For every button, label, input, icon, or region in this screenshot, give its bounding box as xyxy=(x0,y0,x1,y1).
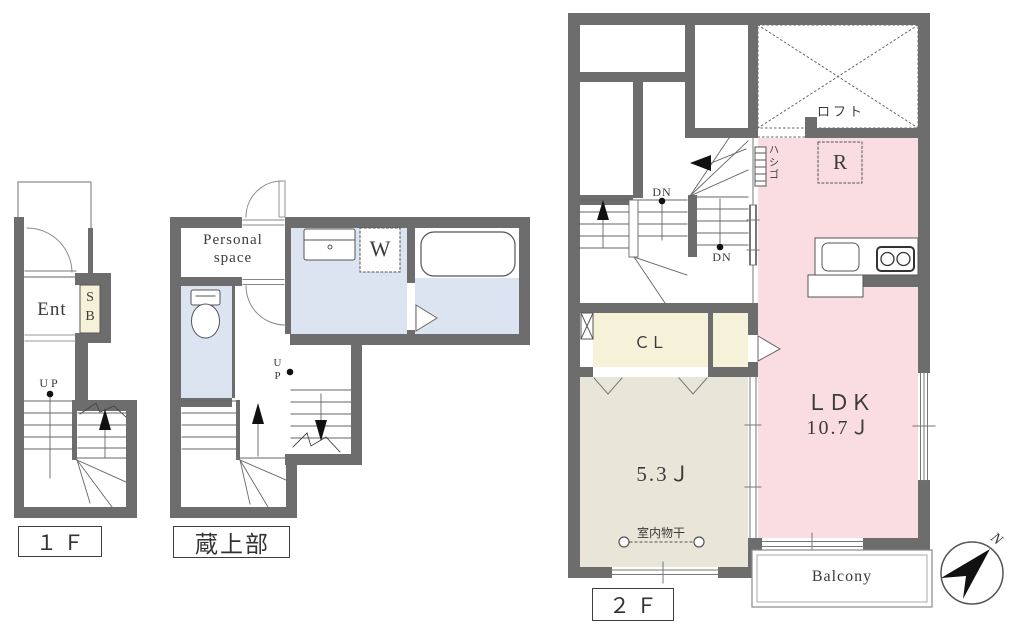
plan-title-2f: ２Ｆ xyxy=(592,588,674,621)
closet2-floor xyxy=(713,313,748,367)
up-arrow-kura xyxy=(252,403,264,424)
up-arrow-1f xyxy=(99,409,111,430)
ladder-icon xyxy=(755,147,766,186)
toilet-icon xyxy=(191,290,220,338)
indoor-drying-label: 室内物干 xyxy=(611,524,711,541)
up-start-dot xyxy=(47,391,54,398)
compass-icon xyxy=(941,542,1003,604)
dn-label-b: DN xyxy=(706,250,738,265)
up-start-dot-kura xyxy=(287,369,294,376)
kitchen-sink-icon xyxy=(822,243,859,271)
stair-break-line-kura xyxy=(293,433,340,452)
kura-door-opening-top xyxy=(242,218,285,227)
room-label-washer: W xyxy=(360,236,400,262)
stairs-kura xyxy=(182,390,351,507)
bathtub-icon xyxy=(421,232,515,276)
room-label-r: R xyxy=(818,150,862,175)
plan-title-1f: １Ｆ xyxy=(18,526,102,557)
stove-icon xyxy=(877,247,914,271)
pipe-space-hatch xyxy=(581,313,593,339)
dn-label-a: DN xyxy=(646,185,678,200)
room-label-loft: ロフト xyxy=(796,101,886,120)
ent-threshold xyxy=(25,335,75,341)
floor-plan-1f xyxy=(14,182,137,518)
up-label-kura: UP xyxy=(271,357,284,382)
room-label-ent: Ent xyxy=(27,299,77,321)
kura-door-leaf xyxy=(279,181,285,217)
floorplan-page: Ent SB UP １Ｆ Personal space W UP 蔵上部 ロフト… xyxy=(0,0,1024,632)
left-arrow-2f xyxy=(690,155,711,171)
personal-door-arc xyxy=(246,286,285,325)
bath-floor xyxy=(415,278,519,335)
ldk-floor xyxy=(758,138,918,538)
porch xyxy=(18,182,91,277)
stairs-1f xyxy=(24,397,126,507)
stairs-2f xyxy=(578,138,748,303)
sink-icon xyxy=(304,229,355,260)
loft-area xyxy=(758,25,918,137)
balcony-label: Balcony xyxy=(772,568,912,586)
floor-plan-2f xyxy=(568,13,1003,607)
plan-title-kura: 蔵上部 xyxy=(173,526,290,558)
kura-door-arc xyxy=(246,181,283,217)
floorplan-drawing xyxy=(0,0,1024,632)
up-label-1f: UP xyxy=(34,376,66,391)
room-label-personal-space: Personal space xyxy=(182,231,284,267)
room-label-sb: SB xyxy=(83,289,97,327)
room-label-cl: ＣＬ xyxy=(600,329,700,353)
ladder-label: ハシゴ xyxy=(768,145,780,183)
room-label-ldk-size: 10.7Ｊ xyxy=(769,411,909,440)
room-label-53j: 5.3Ｊ xyxy=(594,458,734,488)
